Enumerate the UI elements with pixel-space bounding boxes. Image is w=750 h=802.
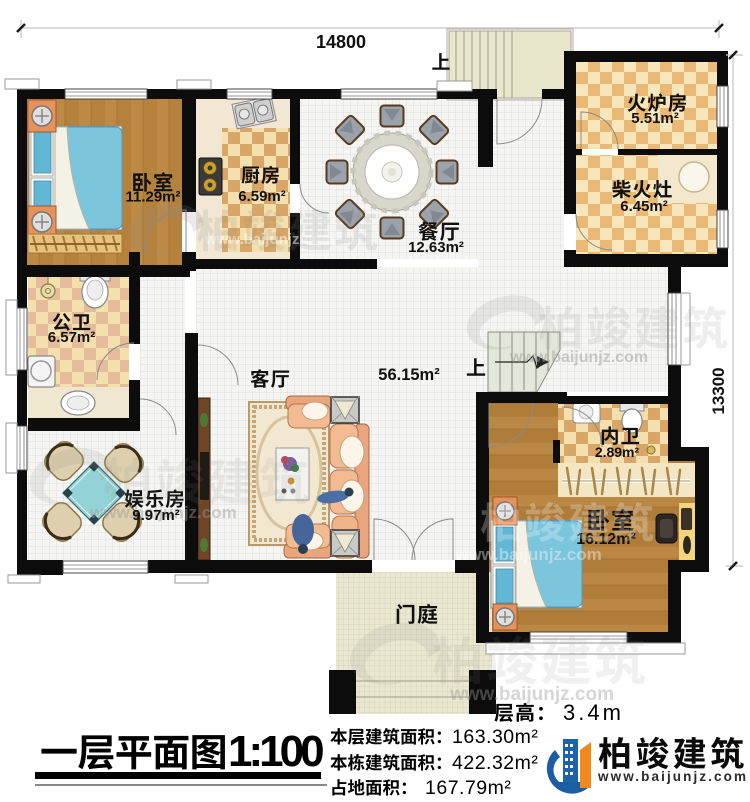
svg-text:422.32m²: 422.32m²: [452, 752, 538, 774]
svg-text:6.59m²: 6.59m²: [238, 188, 286, 205]
svg-text:9.97m²: 9.97m²: [132, 507, 180, 524]
svg-text:12.63m²: 12.63m²: [408, 239, 464, 256]
svg-text:14800: 14800: [316, 32, 366, 52]
svg-text:167.79m²: 167.79m²: [425, 777, 511, 799]
svg-text:3.4m: 3.4m: [563, 700, 624, 725]
svg-text:2.89m²: 2.89m²: [595, 444, 640, 460]
svg-text:13300: 13300: [709, 367, 728, 414]
svg-text:www.baijunjz.com: www.baijunjz.com: [509, 349, 648, 366]
svg-text:163.30m²: 163.30m²: [452, 726, 538, 748]
svg-text:5.51m²: 5.51m²: [631, 110, 679, 127]
svg-text:6.45m²: 6.45m²: [620, 198, 668, 215]
svg-text:www.baijunjz.com: www.baijunjz.com: [597, 769, 748, 784]
svg-text:6.57m²: 6.57m²: [48, 329, 96, 346]
svg-text:56.15m²: 56.15m²: [378, 366, 440, 384]
svg-text:1:100: 1:100: [228, 727, 323, 776]
